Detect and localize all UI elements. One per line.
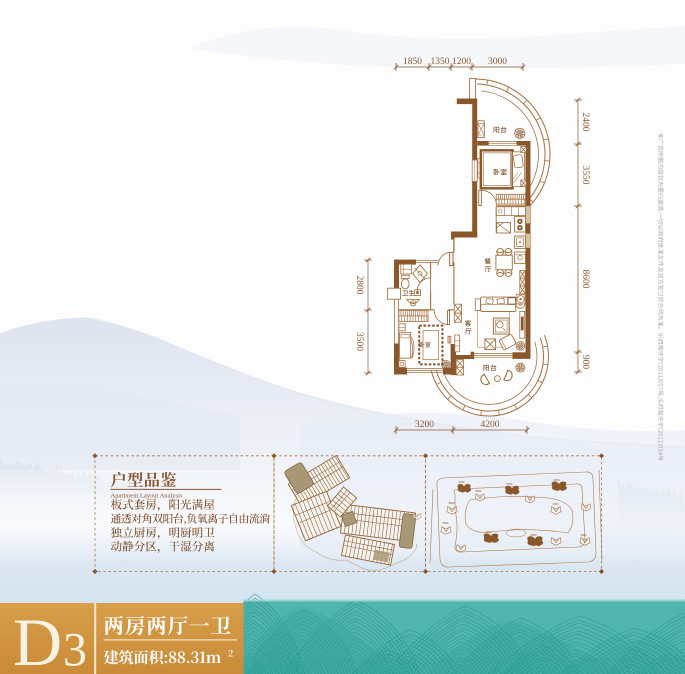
svg-text:1850: 1850 [403,57,422,67]
svg-text:1200: 1200 [452,57,471,67]
svg-text:4200: 4200 [481,420,500,430]
svg-text:3550: 3550 [580,166,590,185]
svg-text:900: 900 [580,355,590,370]
svg-text:2800: 2800 [354,276,364,295]
svg-text:3: 3 [63,624,87,674]
svg-text:Apartment Layout Analysis: Apartment Layout Analysis [111,493,183,500]
svg-text:8600: 8600 [580,270,590,289]
svg-text:D: D [13,604,62,674]
svg-text:3500: 3500 [354,332,364,351]
svg-text:3200: 3200 [415,420,434,430]
svg-text:2400: 2400 [580,113,590,132]
svg-text:3000: 3000 [488,57,507,67]
svg-text:1350: 1350 [431,57,450,67]
